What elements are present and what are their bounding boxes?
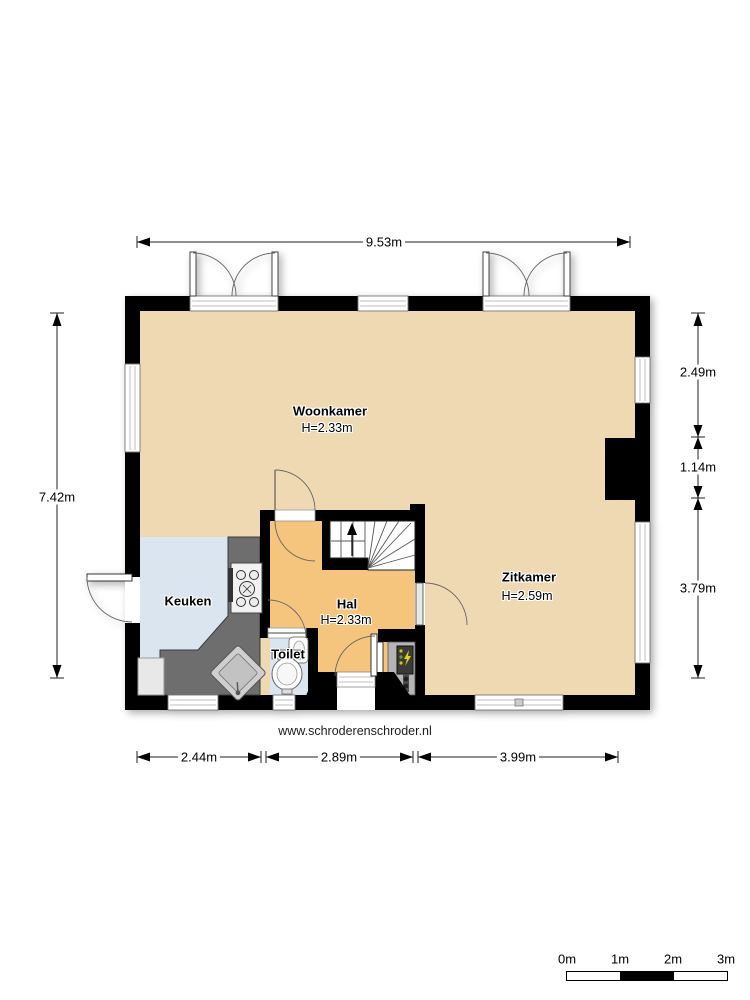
- dimension-left: 7.42m: [36, 490, 78, 505]
- room-height-woonkamer: H=2.33m: [301, 421, 352, 435]
- room-height-zitkamer: H=2.59m: [501, 589, 552, 603]
- room-height-hal: H=2.33m: [320, 613, 371, 627]
- dimension-bottom-3: 3.99m: [497, 750, 539, 765]
- website-text: www.schroderenschroder.nl: [278, 724, 432, 738]
- scale-bar-segment-3: [674, 972, 727, 980]
- dimension-bottom-1: 2.44m: [178, 750, 220, 765]
- scale-label-3m: 3m: [717, 952, 735, 967]
- dimension-right-1: 2.49m: [677, 365, 719, 380]
- scale-bar-segment-2: [620, 972, 673, 980]
- dimension-top: 9.53m: [363, 235, 405, 250]
- room-label-keuken: Keuken: [165, 594, 212, 609]
- dimension-bottom-2: 2.89m: [318, 750, 360, 765]
- scale-bar-segment-1: [567, 972, 620, 980]
- dimension-right-2: 1.14m: [677, 460, 719, 475]
- room-label-zitkamer: Zitkamer: [502, 570, 556, 585]
- floorplan-page: 9.53m 7.42m 2.49m 1.14m 3.79m 2.44m 2.89…: [0, 0, 750, 1000]
- room-label-woonkamer: Woonkamer: [293, 404, 367, 419]
- scale-label-0m: 0m: [558, 952, 576, 967]
- scale-label-1m: 1m: [611, 952, 629, 967]
- scale-bar: [566, 971, 728, 981]
- scale-label-2m: 2m: [664, 952, 682, 967]
- room-label-hal: Hal: [337, 597, 357, 612]
- dimension-right-3: 3.79m: [677, 581, 719, 596]
- dimension-lines: [0, 0, 750, 1000]
- room-label-toilet: Toilet: [271, 647, 305, 662]
